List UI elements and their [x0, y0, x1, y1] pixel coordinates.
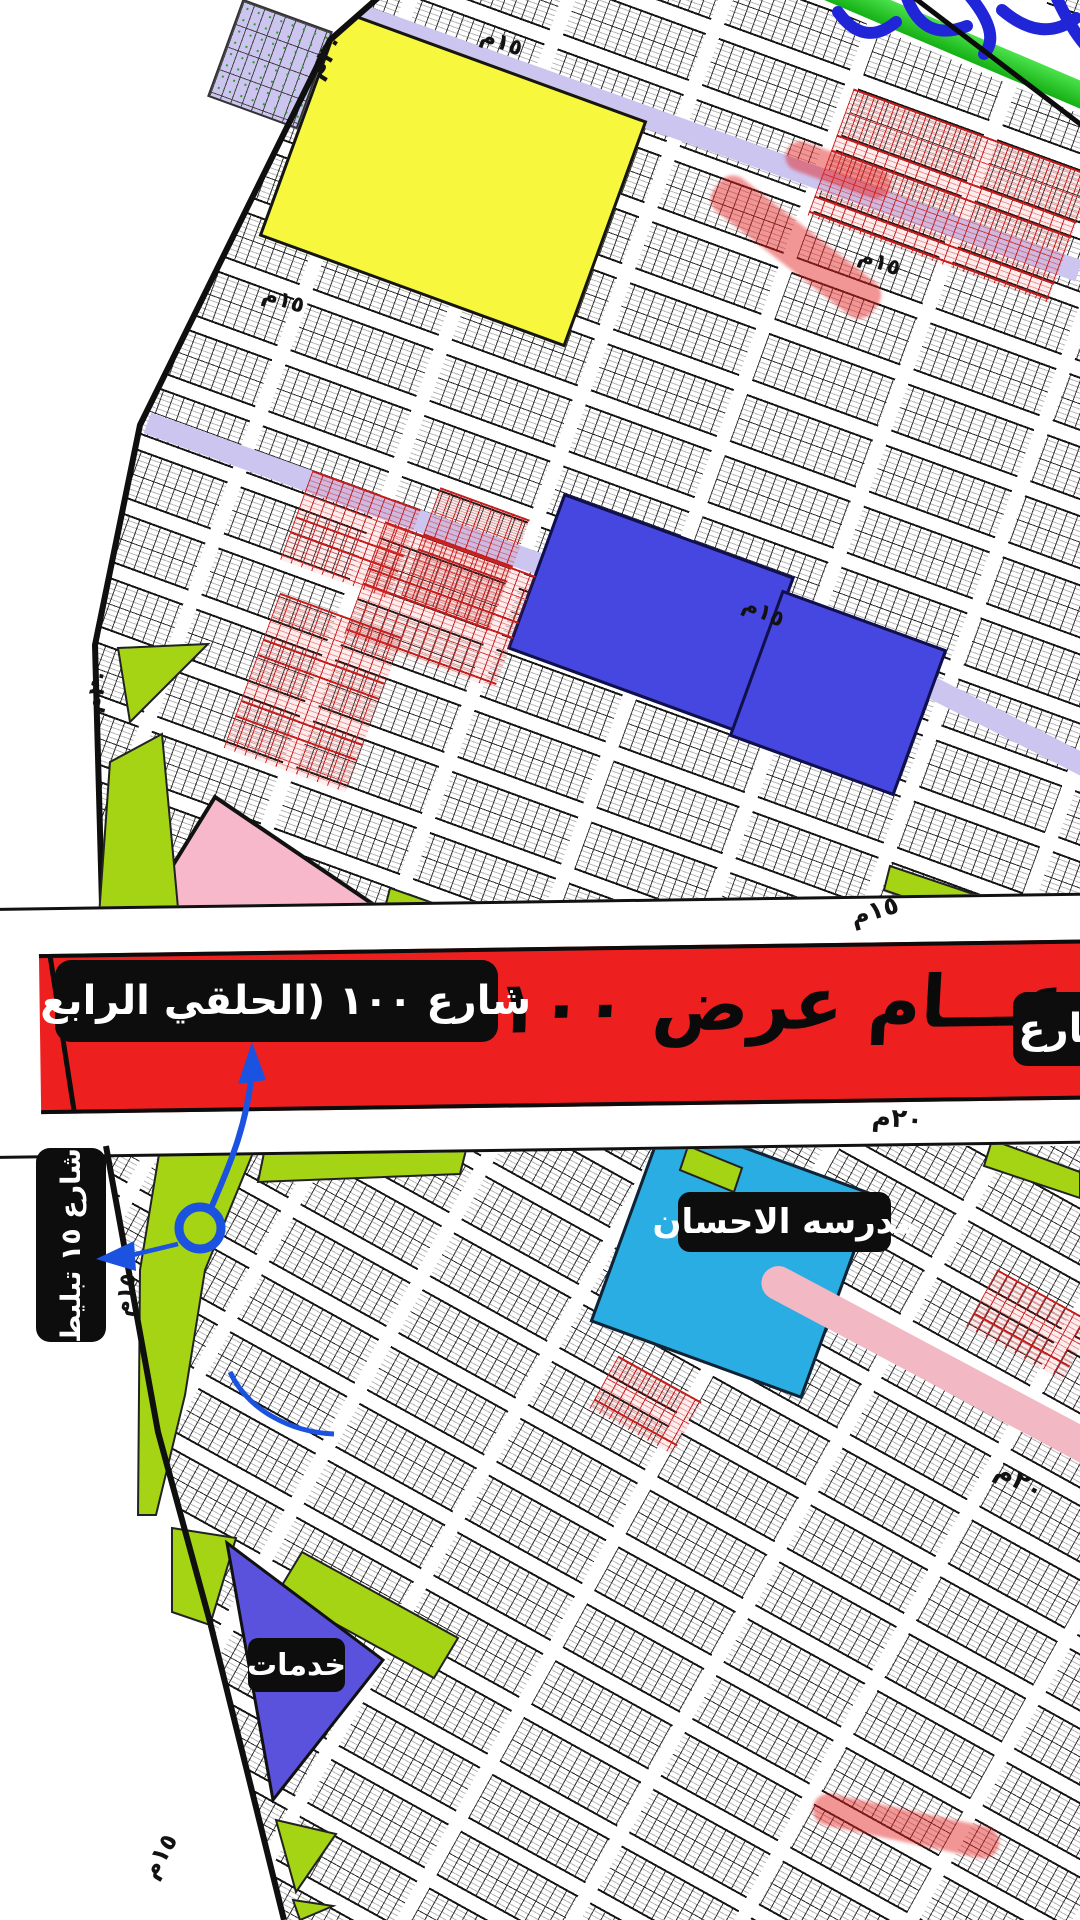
services-label: خدمات: [248, 1638, 345, 1692]
ring-road-fragment-text: شارع: [1018, 1006, 1080, 1052]
ring-road-label: شارع ١٠٠ (الحلقي الرابع): [55, 960, 498, 1042]
school-label: مدرسه الاحسان: [678, 1192, 891, 1252]
ring-road-label-text: شارع ١٠٠ (الحلقي الرابع): [22, 978, 531, 1024]
width-marker: ٢٠م: [871, 1102, 924, 1135]
ring-road-label-fragment: شارع: [1013, 992, 1080, 1066]
school-label-text: مدرسه الاحسان: [652, 1202, 916, 1242]
paved-street-label: شارع ١٥ تبليط: [36, 1148, 106, 1342]
map-screenshot: { "colors": { "band_red": "#ee1f1f", "la…: [0, 0, 1080, 1920]
services-label-text: خدمات: [247, 1648, 346, 1683]
paved-street-label-text: شارع ١٥ تبليط: [56, 1148, 87, 1343]
